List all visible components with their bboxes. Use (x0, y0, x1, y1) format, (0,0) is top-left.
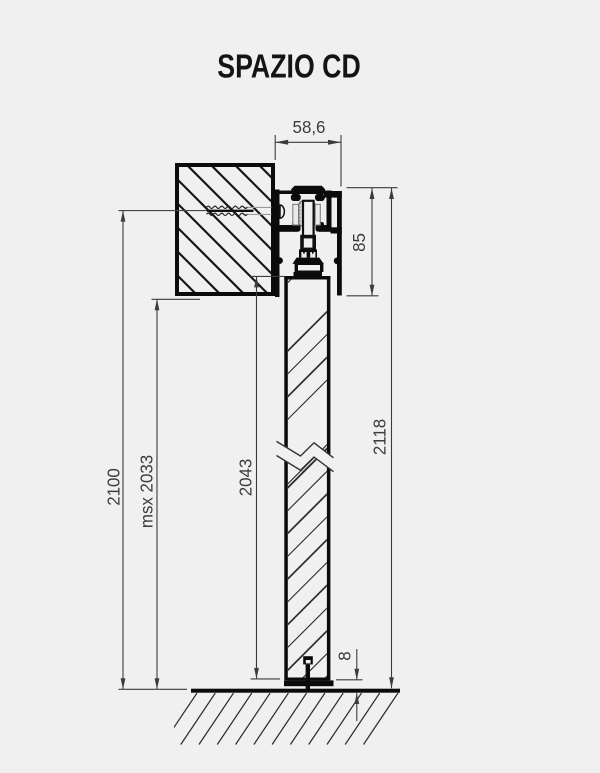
svg-text:8: 8 (334, 651, 355, 660)
svg-text:85: 85 (348, 233, 369, 252)
svg-text:2118: 2118 (369, 419, 390, 455)
svg-text:2043: 2043 (235, 459, 256, 497)
svg-text:msx 2033: msx 2033 (136, 455, 157, 528)
svg-text:SPAZIO CD: SPAZIO CD (217, 49, 360, 85)
svg-text:58,6: 58,6 (293, 116, 326, 137)
svg-text:2100: 2100 (103, 468, 124, 506)
